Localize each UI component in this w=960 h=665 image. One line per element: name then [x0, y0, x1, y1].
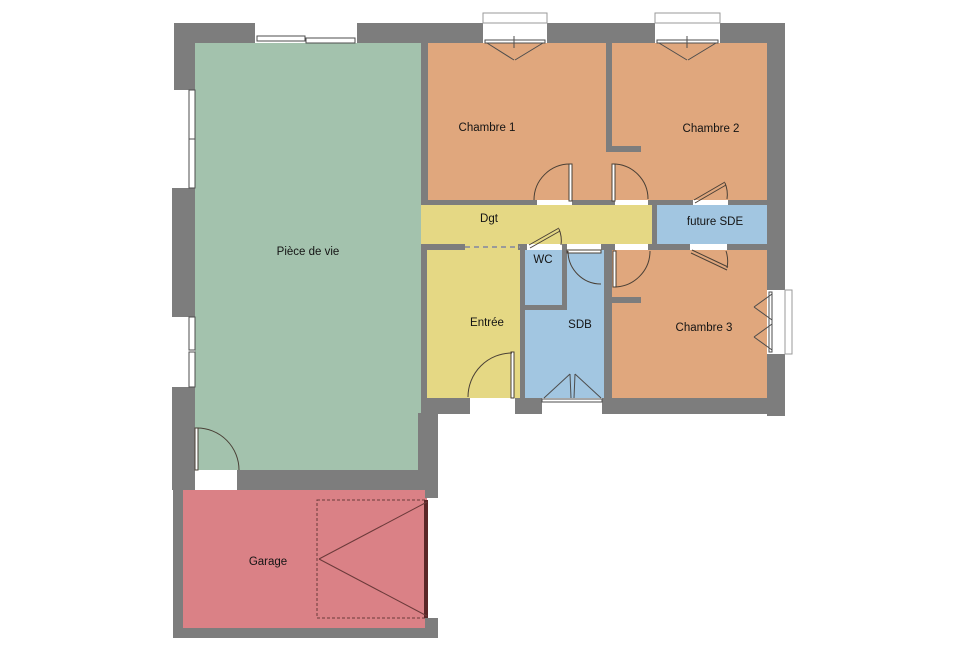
room-label-dgt: Dgt — [480, 213, 499, 225]
door-leaf-living-garage-door — [195, 428, 198, 470]
room-label-wc: WC — [533, 254, 552, 266]
wall — [562, 244, 567, 250]
room-label-future-sde: future SDE — [687, 216, 744, 228]
wall — [421, 43, 428, 205]
door-leaf-chambre2-door — [612, 164, 615, 201]
floor-plan-canvas: Pièce de vieChambre 1Chambre 2Dgtfuture … — [0, 0, 960, 665]
wall — [421, 398, 470, 414]
wall — [606, 43, 612, 152]
wall — [418, 413, 438, 470]
door-leaf-entry-door — [511, 352, 514, 398]
window-living-left-2-frame-icon — [189, 317, 195, 350]
room-label-chambre-1: Chambre 1 — [459, 122, 516, 134]
wall — [515, 398, 542, 414]
floor-plan: Pièce de vieChambre 1Chambre 2Dgtfuture … — [0, 0, 960, 665]
room-sdb — [525, 310, 567, 398]
wall — [572, 200, 606, 205]
wall — [602, 398, 785, 414]
room-label-garage: Garage — [249, 556, 287, 568]
wall — [727, 244, 767, 250]
wall — [648, 200, 693, 205]
wall — [767, 23, 785, 290]
door-leaf-chambre3-door — [613, 251, 616, 287]
room-chambre-2 — [612, 43, 767, 200]
window-chambre3-frame-icon — [769, 292, 772, 352]
wall — [648, 244, 690, 250]
wall — [425, 618, 438, 628]
wall — [604, 250, 612, 398]
room-label-chambre-2: Chambre 2 — [683, 123, 740, 135]
wall — [425, 490, 438, 498]
wall — [520, 244, 525, 413]
window-sdb-frame-icon — [542, 399, 602, 402]
wall — [173, 628, 438, 638]
room-label-piece-de-vie: Pièce de vie — [277, 246, 340, 258]
wall — [237, 470, 438, 490]
wall — [728, 200, 767, 205]
wall — [612, 297, 641, 303]
room-chambre-1 — [428, 43, 606, 200]
garage-door-panel-icon — [424, 500, 428, 618]
wall — [652, 205, 657, 244]
wall — [421, 244, 465, 250]
window-chambre1-sill-box — [483, 13, 547, 23]
room-chambre-2 — [606, 152, 612, 200]
door-leaf-chambre1-door — [569, 164, 572, 201]
wall — [172, 387, 195, 490]
window-chambre2-sill-box — [655, 13, 720, 23]
wall — [601, 244, 615, 250]
bay-window-living-frame-icon — [306, 38, 355, 43]
room-label-chambre-3: Chambre 3 — [676, 322, 733, 334]
wall — [172, 188, 195, 317]
door-leaf-sdb-door — [567, 250, 601, 253]
wall — [173, 490, 183, 628]
room-label-entree: Entrée — [470, 317, 504, 329]
window-chambre3-sill-box — [785, 290, 792, 354]
room-dgt — [421, 205, 652, 244]
wall — [562, 250, 567, 310]
window-chambre1-frame-icon — [485, 40, 545, 43]
room-garage — [183, 490, 427, 628]
wall — [174, 23, 195, 90]
wall — [357, 23, 483, 43]
bay-window-living-frame-icon — [257, 36, 305, 41]
wall — [612, 146, 641, 152]
wall — [525, 305, 567, 310]
window-living-left-2-frame-icon — [189, 352, 195, 387]
wall — [421, 244, 427, 413]
wall — [547, 23, 655, 43]
wall — [428, 200, 537, 205]
room-label-sdb: SDB — [568, 319, 592, 331]
